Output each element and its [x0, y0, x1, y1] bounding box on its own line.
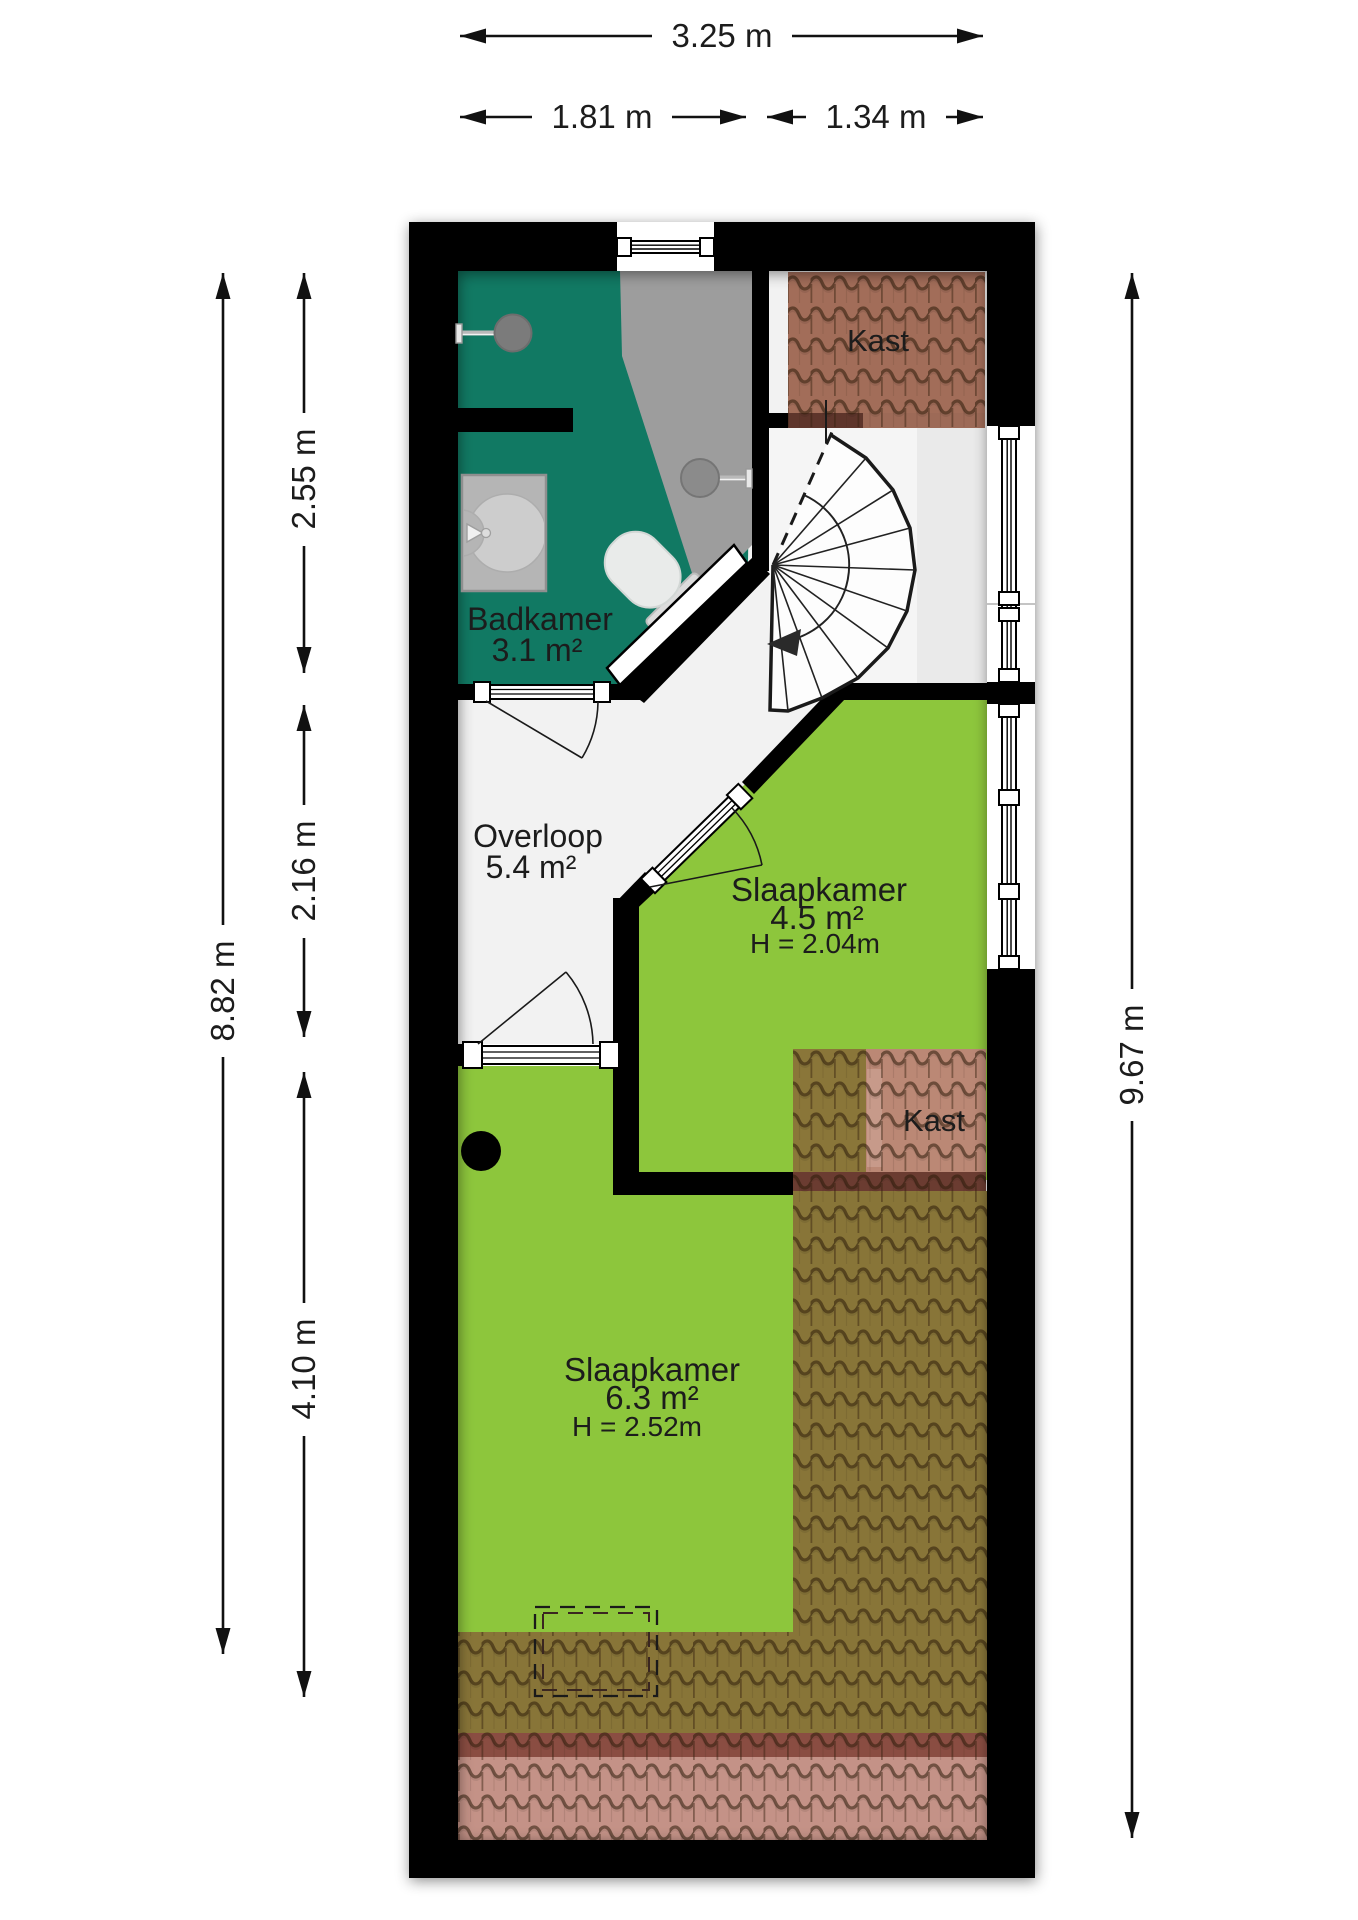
svg-text:H = 2.52m: H = 2.52m — [572, 1411, 702, 1442]
svg-text:5.4 m²: 5.4 m² — [486, 849, 577, 885]
svg-text:1.34 m: 1.34 m — [826, 98, 927, 135]
svg-text:H = 2.04m: H = 2.04m — [750, 928, 880, 959]
svg-text:3.1 m²: 3.1 m² — [492, 632, 583, 668]
svg-text:Kast: Kast — [903, 1103, 965, 1138]
svg-text:8.82 m: 8.82 m — [204, 941, 241, 1042]
svg-text:2.16 m: 2.16 m — [285, 821, 322, 922]
svg-text:2.55 m: 2.55 m — [285, 429, 322, 530]
svg-text:Kast: Kast — [847, 323, 909, 358]
svg-text:4.10 m: 4.10 m — [285, 1319, 322, 1420]
svg-text:3.25 m: 3.25 m — [672, 17, 773, 54]
svg-text:9.67 m: 9.67 m — [1113, 1005, 1150, 1106]
svg-text:1.81 m: 1.81 m — [552, 98, 653, 135]
